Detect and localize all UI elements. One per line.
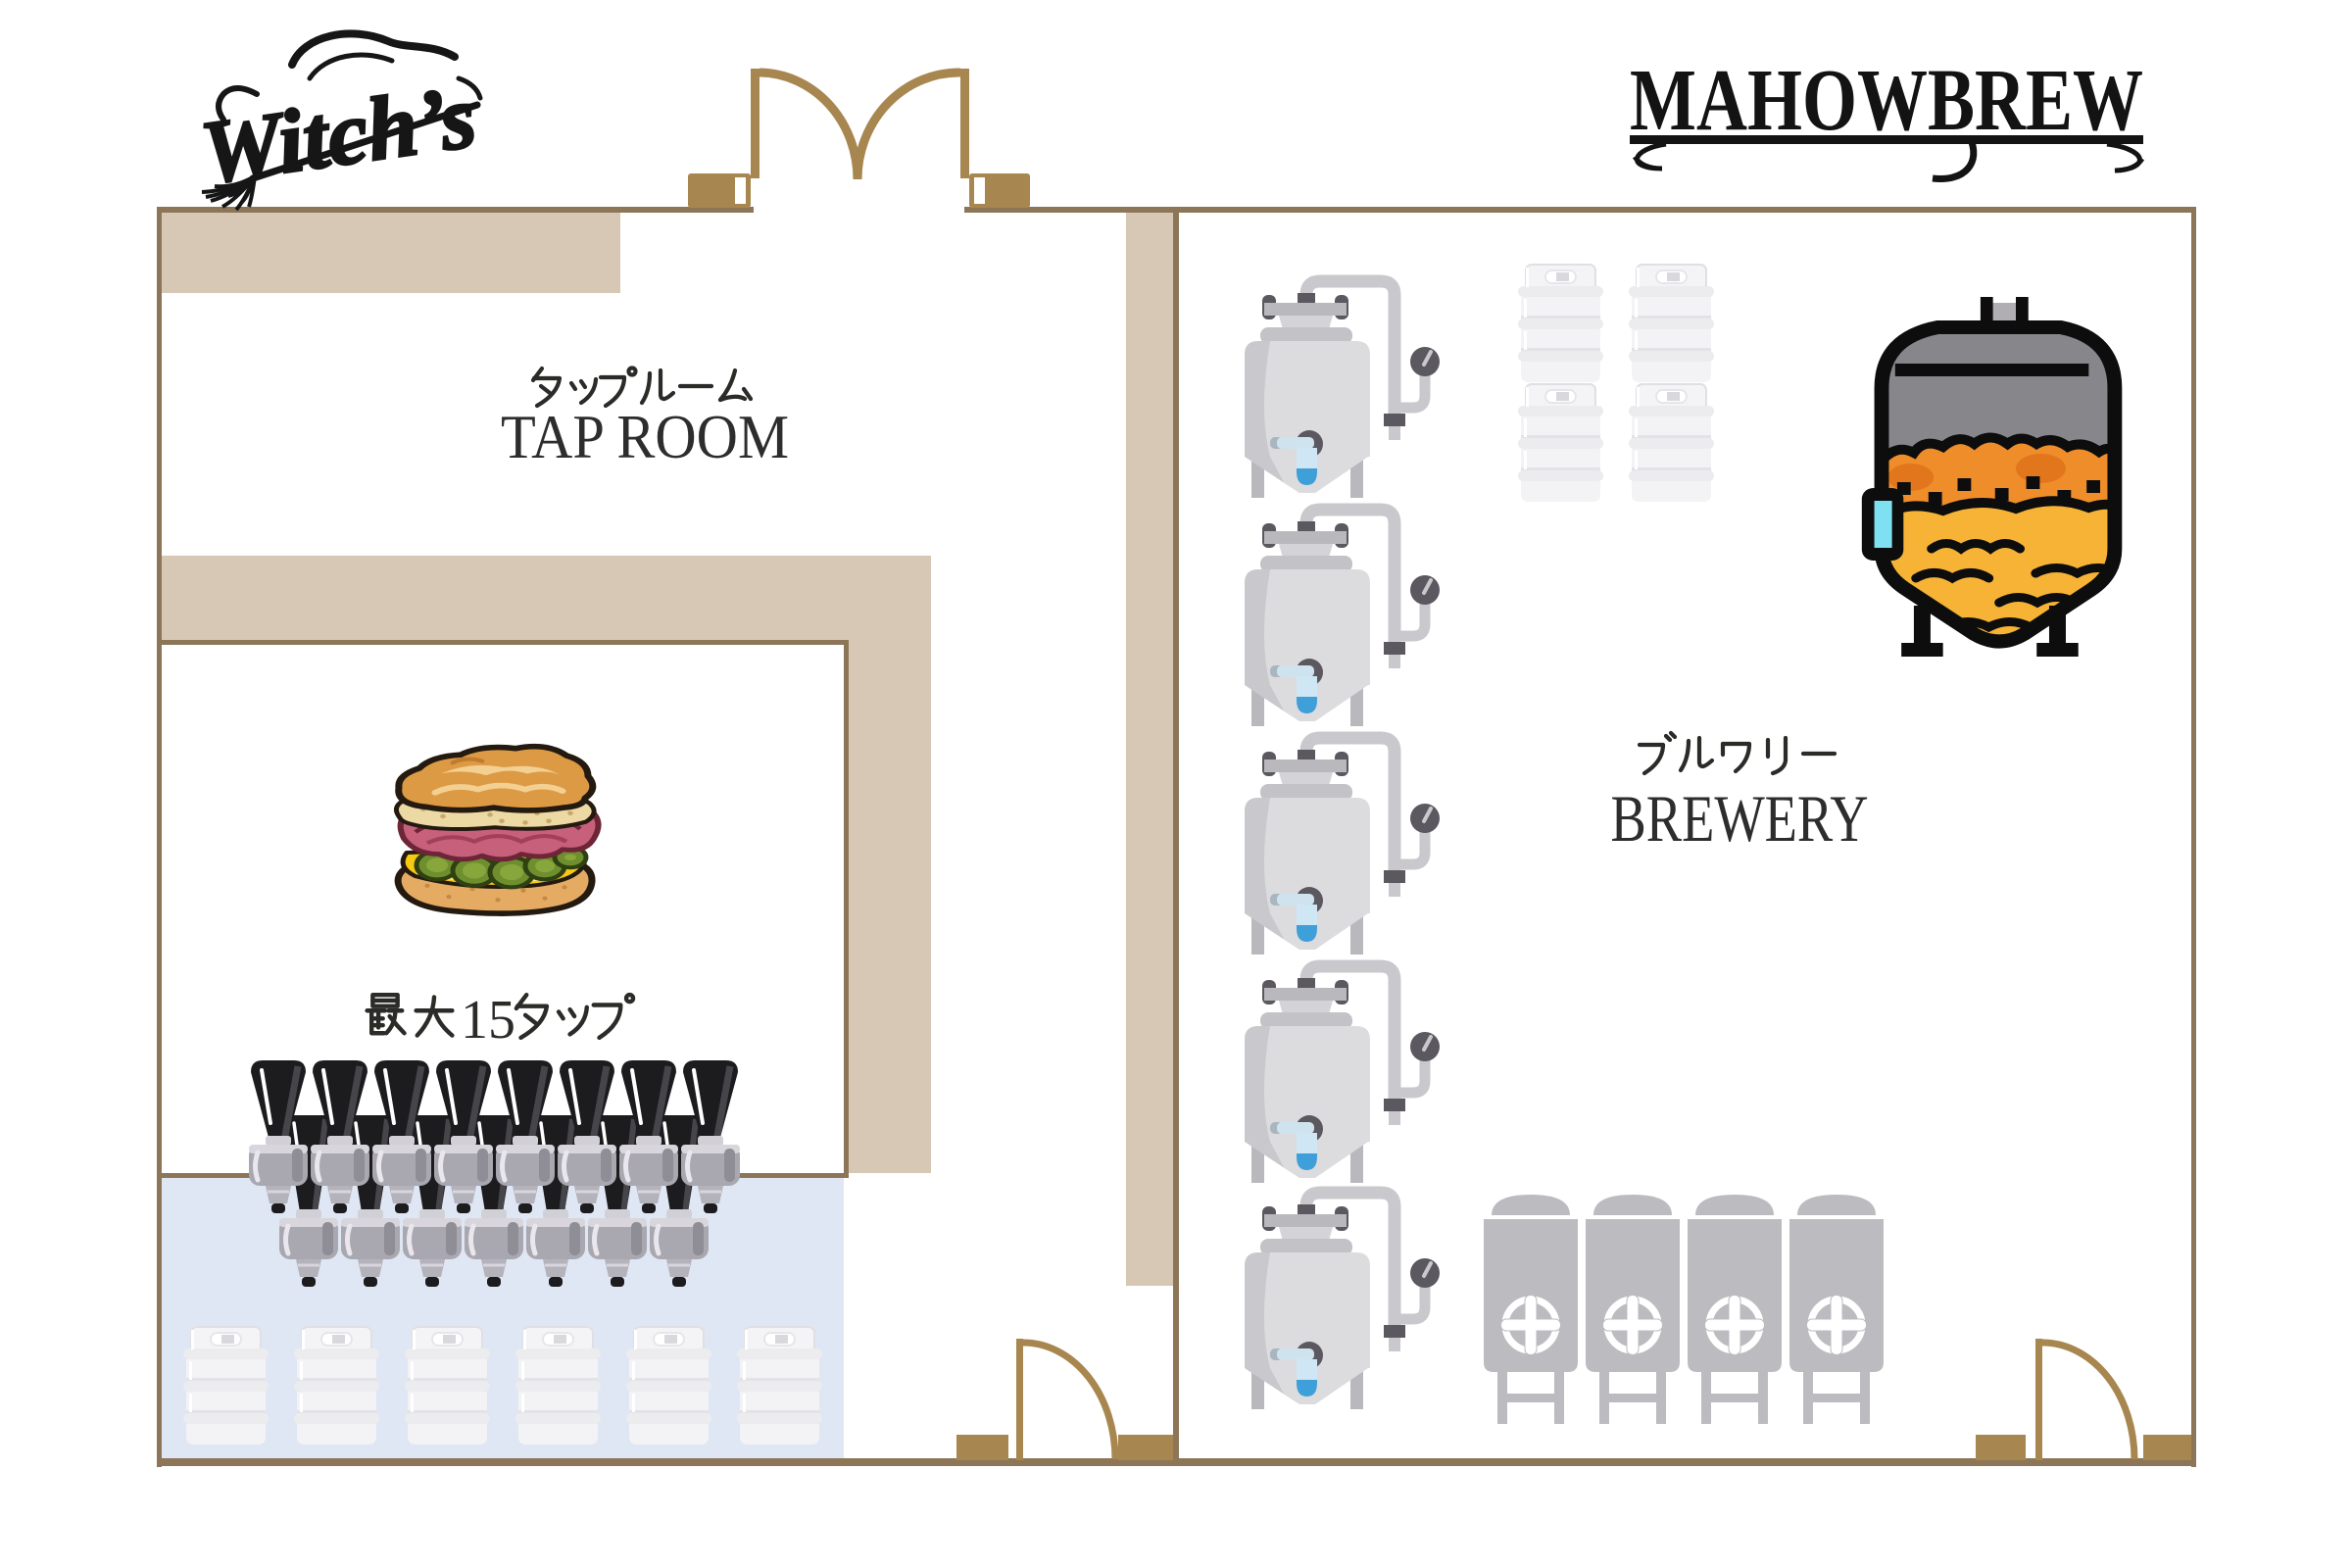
svg-text:BREWERY: BREWERY [1611,781,1869,856]
svg-text:TAP ROOM: TAP ROOM [501,402,789,471]
svg-text:MAHOWBREW: MAHOWBREW [1630,52,2143,149]
svg-text:15: 15 [461,990,515,1051]
